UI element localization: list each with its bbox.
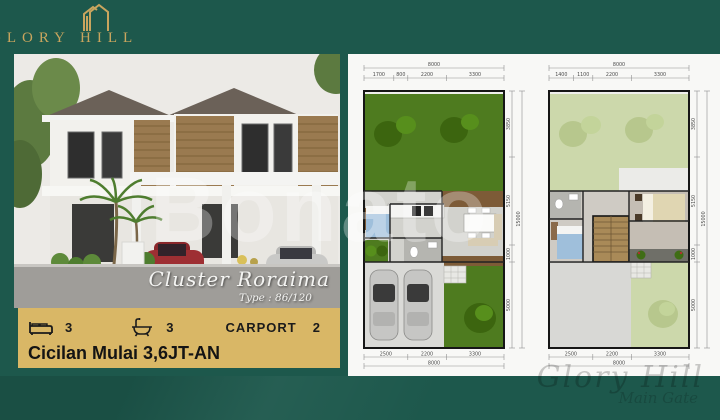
bed-count: 3	[65, 320, 72, 335]
svg-text:5150: 5150	[691, 195, 697, 207]
bathroom	[404, 238, 442, 262]
brand-logo: GLORY HILL	[0, 0, 260, 54]
carport-car-2	[404, 270, 432, 340]
svg-text:15000: 15000	[516, 211, 522, 226]
cluster-caption: Cluster Roraima Type : 86/120	[148, 267, 330, 304]
svg-text:800: 800	[396, 72, 405, 78]
svg-text:15000: 15000	[701, 211, 707, 226]
house-facades	[42, 88, 340, 267]
svg-text:3300: 3300	[654, 352, 666, 358]
svg-text:3300: 3300	[469, 72, 481, 78]
svg-text:3850: 3850	[691, 118, 697, 130]
dims-right: 3850 5150 1000 5000 15000	[506, 91, 525, 348]
svg-text:1000: 1000	[506, 248, 512, 260]
plan2-body	[549, 91, 689, 348]
svg-text:2200: 2200	[421, 352, 433, 358]
svg-text:2500: 2500	[380, 352, 392, 358]
svg-text:8000: 8000	[428, 62, 440, 68]
svg-text:8000: 8000	[428, 361, 440, 367]
footer-strip: Glory Hill Main Gate	[0, 376, 720, 420]
dims-bottom: 2500 2200 3300 8000	[364, 352, 504, 370]
dining-table	[464, 214, 496, 232]
house-logo-icon	[76, 2, 122, 32]
svg-text:1400: 1400	[555, 72, 567, 78]
svg-text:5000: 5000	[691, 299, 697, 311]
brand-name: GLORY HILL	[0, 30, 138, 47]
svg-text:3850: 3850	[506, 118, 512, 130]
installment-text: Cicilan Mulai 3,6JT-AN	[18, 343, 340, 364]
house-render: Cluster Roraima Type : 86/120	[14, 54, 340, 308]
stairs	[593, 216, 629, 262]
dims-top: 8000 1400 1100 2200 3300	[549, 62, 689, 81]
svg-text:5150: 5150	[506, 195, 512, 207]
svg-text:2200: 2200	[606, 72, 618, 78]
carport-label: CARPORT	[225, 320, 296, 335]
dims-right: 3850 5150 1000 5000 15000	[691, 91, 710, 348]
deck	[442, 191, 504, 207]
svg-text:1100: 1100	[577, 72, 589, 78]
svg-text:2200: 2200	[421, 72, 433, 78]
svg-text:5000: 5000	[506, 299, 512, 311]
cluster-name: Cluster Roraima	[148, 267, 330, 291]
bath-count: 3	[166, 320, 173, 335]
svg-text:3300: 3300	[654, 72, 666, 78]
svg-text:1000: 1000	[691, 248, 697, 260]
svg-text:2500: 2500	[565, 352, 577, 358]
dims-top: 8000 1700 800 2200 3300	[364, 62, 504, 81]
bed-icon	[27, 318, 53, 336]
svg-text:3300: 3300	[469, 352, 481, 358]
spec-banner: 3 3 CARPORT 2 Cicilan Mulai 3,6JT-AN	[18, 308, 340, 368]
carport-roof	[549, 262, 631, 348]
floorplan-panel: 8000 1700 800 2200 3300	[348, 54, 720, 376]
corner-watermark: Glory Hill Main Gate	[537, 360, 704, 407]
spec-row: 3 3 CARPORT 2	[18, 308, 340, 341]
carport-count: 2	[313, 320, 320, 335]
floorplan-first-floor: 8000 1700 800 2200 3300	[356, 56, 534, 374]
carport-car-1	[370, 270, 398, 340]
plan1-body	[364, 91, 504, 348]
type-label: Type : 86/120	[148, 292, 330, 304]
svg-text:1700: 1700	[373, 72, 385, 78]
floorplan-second-floor: 8000 1400 1100 2200 3300	[541, 56, 719, 374]
bathtub-icon	[130, 317, 154, 337]
svg-text:2200: 2200	[606, 352, 618, 358]
svg-text:8000: 8000	[613, 62, 625, 68]
